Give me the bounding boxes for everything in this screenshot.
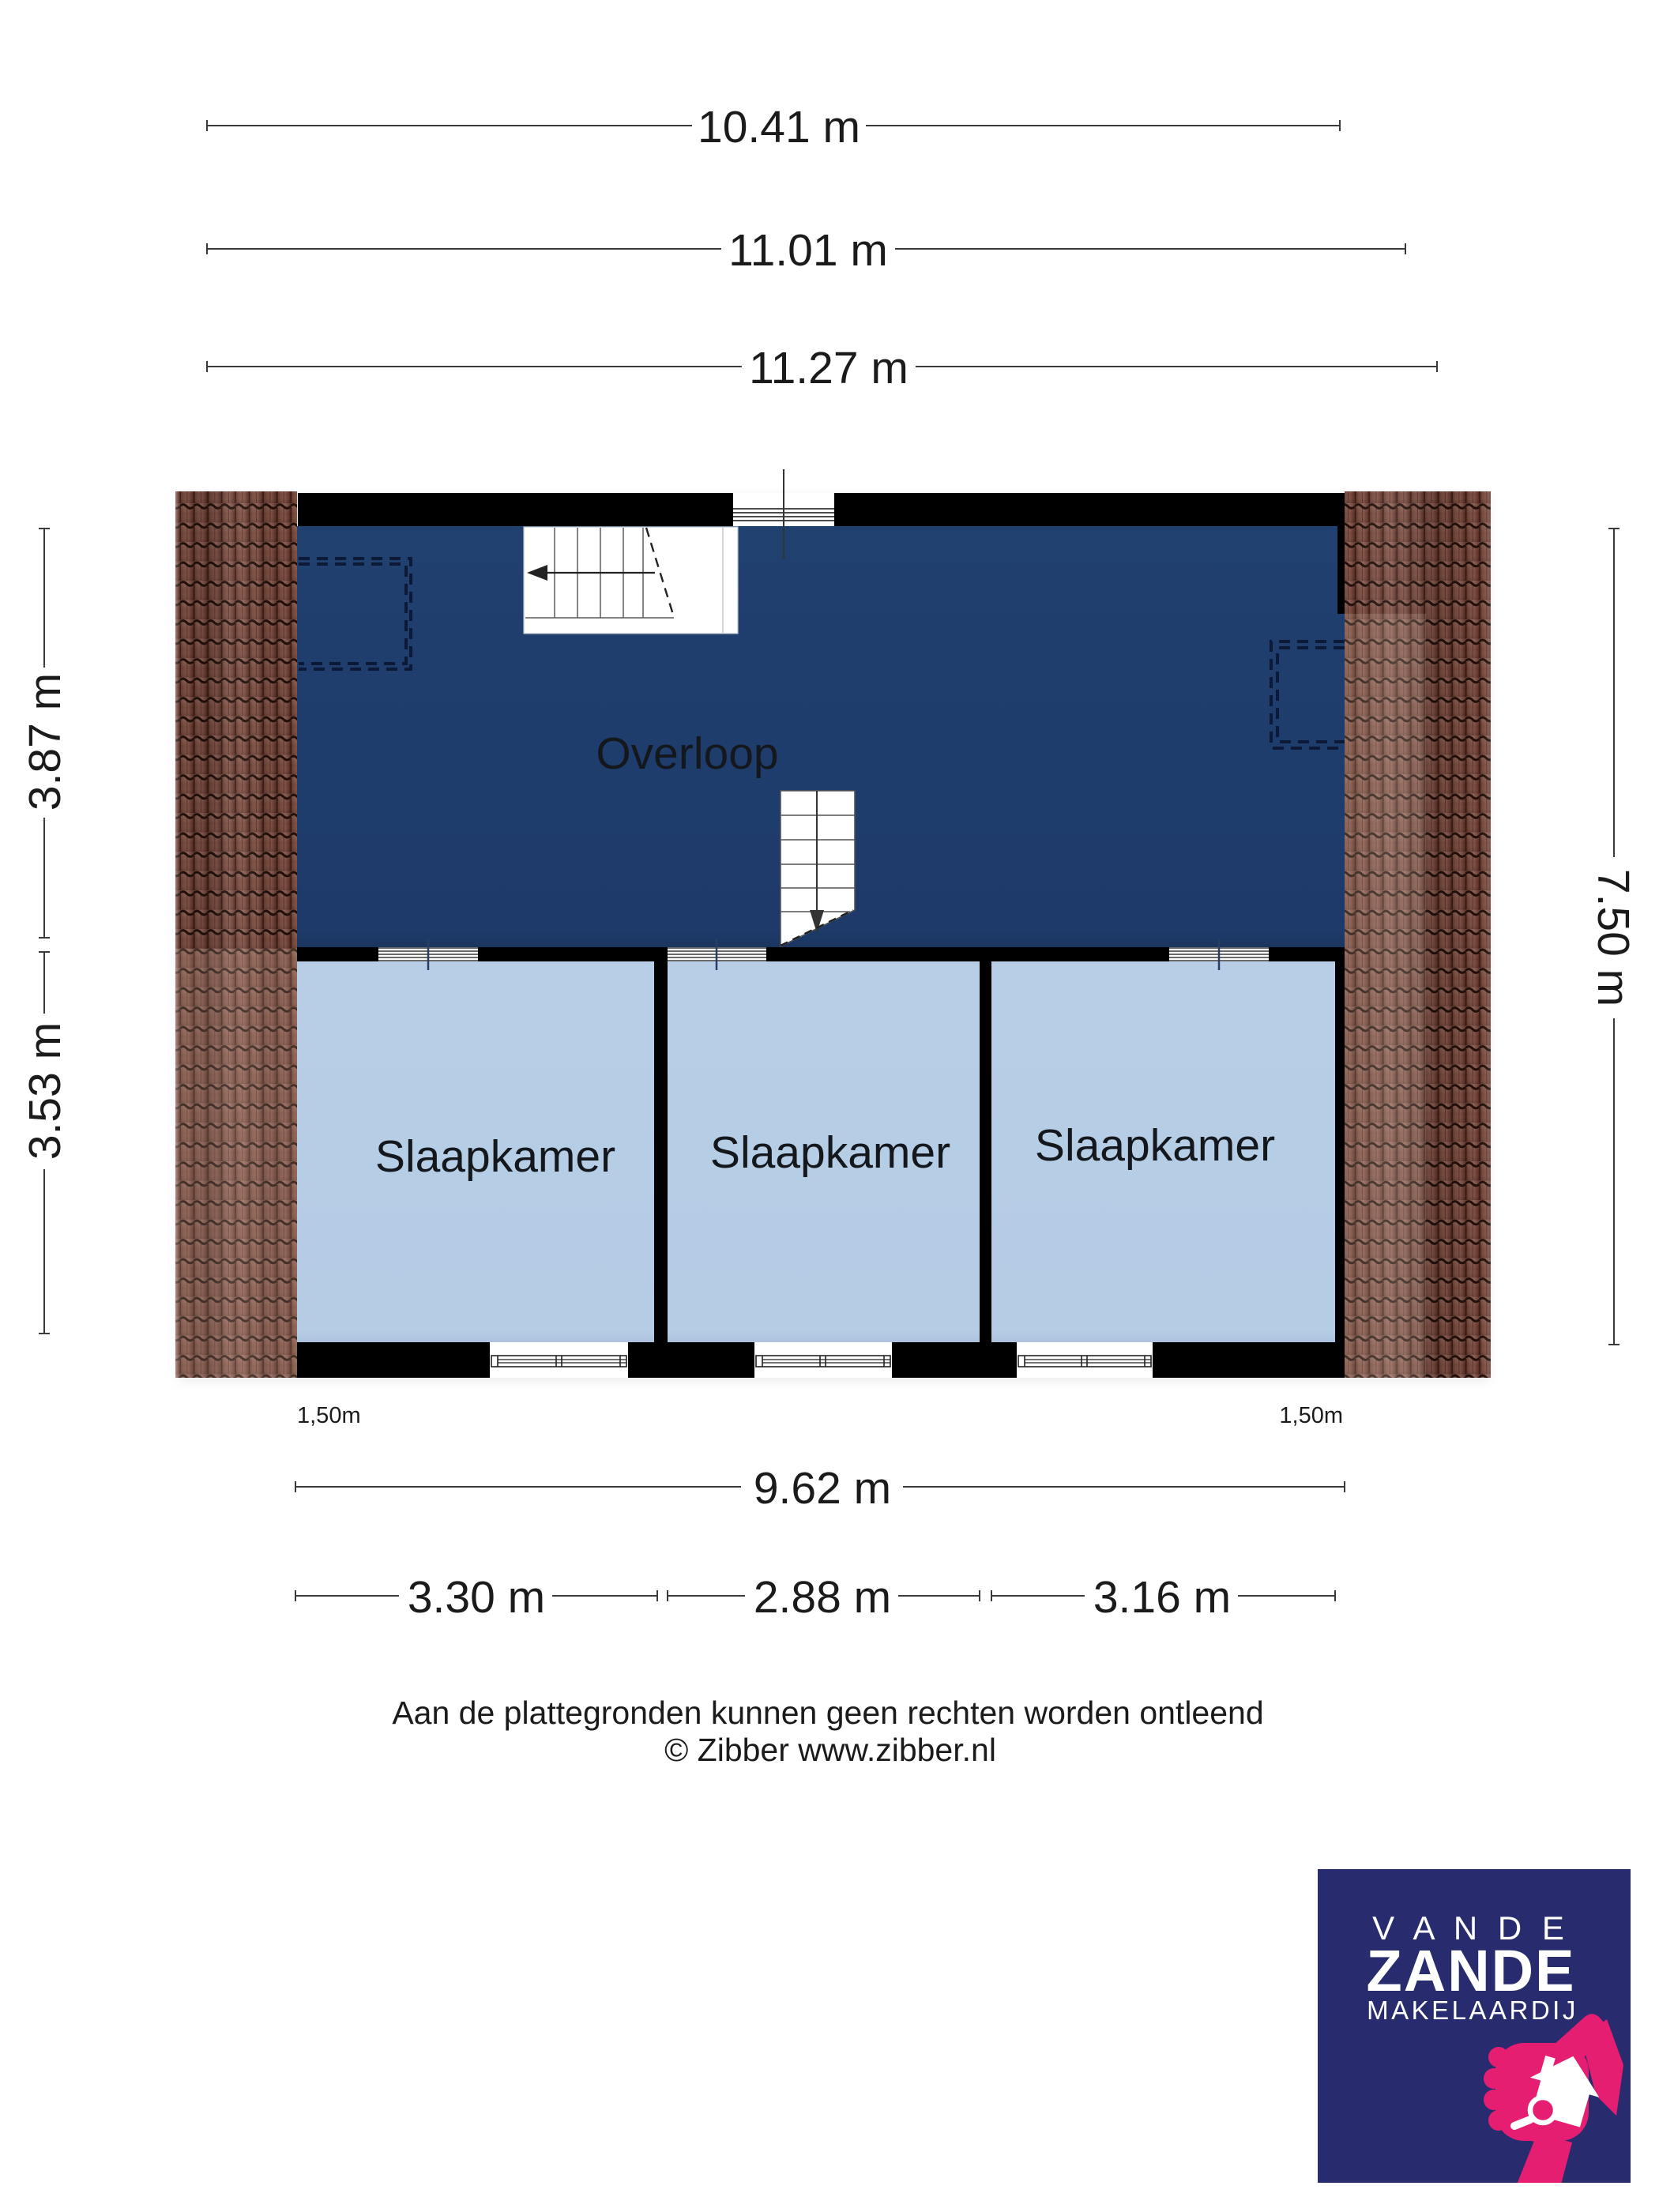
- svg-text:Overloop: Overloop: [596, 728, 778, 779]
- svg-text:ZANDE: ZANDE: [1367, 1938, 1576, 2003]
- svg-text:Slaapkamer: Slaapkamer: [710, 1127, 950, 1178]
- svg-text:1,50m: 1,50m: [297, 1403, 361, 1428]
- svg-text:3.53 m: 3.53 m: [20, 1022, 70, 1160]
- svg-text:MAKELAARDIJ: MAKELAARDIJ: [1367, 1996, 1578, 2025]
- svg-text:2.88 m: 2.88 m: [754, 1572, 891, 1623]
- svg-text:Slaapkamer: Slaapkamer: [1035, 1120, 1275, 1171]
- svg-text:10.41 m: 10.41 m: [698, 102, 860, 152]
- svg-text:9.62 m: 9.62 m: [754, 1463, 891, 1514]
- svg-text:3.30 m: 3.30 m: [408, 1572, 545, 1623]
- svg-text:Slaapkamer: Slaapkamer: [375, 1131, 615, 1182]
- svg-text:11.01 m: 11.01 m: [728, 225, 888, 276]
- svg-text:© Zibber www.zibber.nl: © Zibber www.zibber.nl: [664, 1732, 996, 1768]
- svg-text:1,50m: 1,50m: [1279, 1403, 1343, 1428]
- svg-text:3.16 m: 3.16 m: [1093, 1572, 1231, 1623]
- svg-text:3.87 m: 3.87 m: [20, 673, 70, 811]
- svg-text:7.50 m: 7.50 m: [1588, 869, 1638, 1006]
- svg-text:11.27 m: 11.27 m: [749, 343, 908, 393]
- svg-text:Aan de plattegronden kunnen ge: Aan de plattegronden kunnen geen rechten…: [392, 1695, 1263, 1731]
